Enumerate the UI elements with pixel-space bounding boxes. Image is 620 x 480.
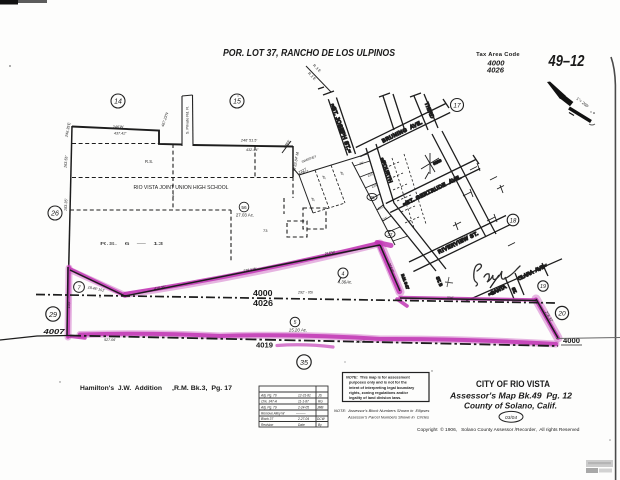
svg-text:56: 56	[241, 205, 247, 211]
svg-text:1374': 1374'	[356, 340, 365, 344]
svg-text:R 2 E: R 2 E	[307, 72, 317, 82]
svg-text:4.36Ac.: 4.36Ac.	[338, 280, 353, 285]
svg-text:2-27-04: 2-27-04	[297, 417, 309, 421]
svg-text:246.35'E: 246.35'E	[64, 122, 71, 139]
svg-text:,R.M. Bk.3, Pg. 17: ,R.M. Bk.3, Pg. 17	[172, 386, 233, 392]
svg-text:intent of interpreting legal b: intent of interpreting legal boundary	[349, 386, 415, 390]
svg-text:Chk. 347-A: Chk. 347-A	[261, 400, 277, 404]
svg-text:36: 36	[369, 195, 375, 200]
svg-text:40': 40'	[339, 171, 345, 177]
svg-text:DCW: DCW	[317, 417, 326, 421]
svg-text:4000: 4000	[253, 289, 273, 298]
svg-text:37: 37	[387, 232, 393, 237]
svg-text:4019: 4019	[256, 341, 273, 350]
svg-text:2-24-05: 2-24-05	[297, 406, 309, 410]
svg-text:THIRD: THIRD	[423, 101, 435, 119]
svg-text:15: 15	[233, 99, 241, 106]
svg-text:R.S.: R.S.	[145, 159, 153, 164]
svg-text:ST. B: ST. B	[435, 276, 443, 287]
svg-text:40': 40'	[321, 175, 327, 181]
svg-text:Copyright © 1906, Solano Co: Copyright © 1906, Solano County Assessor…	[417, 426, 580, 433]
svg-text:Revision: Revision	[261, 423, 273, 427]
svg-text:5: 5	[294, 320, 297, 326]
svg-text:Adj. Pg. 79: Adj. Pg. 79	[260, 406, 277, 410]
svg-text:15.20 Ac.: 15.20 Ac.	[289, 328, 307, 333]
svg-text:19: 19	[540, 284, 546, 290]
svg-text:73: 73	[263, 228, 268, 233]
svg-text:Tax Area Code: Tax Area Code	[476, 52, 520, 58]
svg-text:Hamilton's J.W. Addition: Hamilton's J.W. Addition	[80, 386, 162, 392]
svg-text:50/50: 50/50	[433, 159, 442, 166]
svg-text:18: 18	[510, 218, 517, 224]
svg-text:163.55': 163.55'	[63, 155, 68, 168]
svg-text:49–12: 49–12	[548, 53, 585, 70]
svg-text:246'W: 246'W	[112, 125, 124, 129]
svg-text:1"= 200': 1"= 200'	[575, 96, 590, 109]
svg-text:4: 4	[342, 271, 345, 277]
svg-text:12-31-81: 12-31-81	[298, 394, 311, 398]
svg-text:125': 125'	[381, 216, 388, 222]
svg-text:704': 704'	[447, 296, 454, 300]
svg-text:R 3 E: R 3 E	[312, 64, 322, 74]
svg-text:183.35': 183.35'	[64, 198, 69, 211]
svg-text:27.03 Ac.: 27.03 Ac.	[236, 213, 254, 218]
svg-text:246' 51.5': 246' 51.5'	[240, 139, 258, 143]
svg-text:R.S. 6 — 13: R.S. 6 — 13	[100, 241, 164, 246]
svg-text:legality of land division laws: legality of land division laws.	[349, 396, 401, 400]
svg-text:NOTE: Assessor's Block Number: NOTE: Assessor's Block Numbers Shown in …	[334, 408, 429, 413]
svg-text:County of Solano, Calif.: County of Solano, Calif.	[464, 401, 557, 411]
svg-text:Assessor's Map Bk.49 Pg. 12: Assessor's Map Bk.49 Pg. 12	[449, 391, 572, 401]
svg-text:———: ———	[295, 412, 306, 416]
svg-text:50': 50'	[359, 161, 365, 166]
svg-text:103': 103'	[67, 301, 71, 308]
svg-text:4: 4	[172, 193, 175, 198]
svg-text:Remove Alley W: Remove Alley W	[261, 412, 285, 416]
svg-text:14: 14	[114, 99, 122, 106]
svg-text:Date: Date	[298, 423, 305, 427]
svg-text:4026: 4026	[486, 66, 505, 75]
svg-text:26: 26	[50, 211, 59, 218]
svg-text:4007: 4007	[42, 327, 66, 336]
svg-text:432.44': 432.44'	[246, 148, 259, 152]
svg-text:20: 20	[557, 311, 566, 318]
svg-text:purposes only and is not for t: purposes only and is not for the	[349, 381, 407, 385]
svg-text:11-1-87: 11-1-87	[298, 400, 309, 404]
svg-text:248'E: 248'E	[282, 139, 291, 150]
svg-text:35: 35	[300, 358, 309, 367]
svg-text:17: 17	[453, 103, 461, 110]
svg-text:29: 29	[48, 310, 57, 319]
svg-text:4000: 4000	[563, 336, 580, 345]
svg-text:467.23'N: 467.23'N	[161, 112, 170, 128]
svg-text:527.06': 527.06'	[104, 338, 116, 342]
svg-text:JS: JS	[318, 394, 323, 398]
svg-text:4026: 4026	[253, 299, 274, 308]
svg-text:7: 7	[77, 285, 81, 291]
svg-text:SWEENEY: SWEENEY	[301, 154, 318, 164]
svg-text:RIO VISTA JOINT UNION HIGH SCH: RIO VISTA JOINT UNION HIGH SCHOOL	[134, 185, 229, 191]
svg-text:Adj. Pg. 70: Adj. Pg. 70	[260, 394, 277, 398]
svg-text:40': 40'	[310, 197, 316, 203]
svg-text:437.42': 437.42'	[114, 132, 127, 136]
svg-text:RG: RG	[318, 400, 323, 404]
svg-text:03/04: 03/04	[505, 415, 517, 421]
svg-text:POR. LOT 37, RANCHO DE LOS ULP: POR. LOT 37, RANCHO DE LOS ULPINOS	[223, 48, 395, 59]
svg-text:By: By	[318, 423, 322, 427]
svg-text:S. Private Rd. R.: S. Private Rd. R.	[186, 106, 190, 134]
svg-text:CITY OF RIO VISTA: CITY OF RIO VISTA	[476, 379, 550, 389]
svg-text:JMB: JMB	[317, 406, 324, 410]
svg-text:292' - 05i: 292' - 05i	[297, 291, 313, 295]
svg-text:≈FOURTH: ≈FOURTH	[379, 157, 394, 184]
svg-text:rights, zoning regulations and: rights, zoning regulations and/or	[349, 391, 409, 395]
svg-text:Block 37: Block 37	[261, 417, 273, 421]
svg-text:NOTE: This map is for assessm: NOTE: This map is for assessment	[346, 375, 410, 379]
svg-text:Assessor's Parcel Numbers Show: Assessor's Parcel Numbers Shown in Circl…	[347, 415, 429, 420]
svg-text:CLARA AVE≈: CLARA AVE≈	[517, 263, 548, 282]
